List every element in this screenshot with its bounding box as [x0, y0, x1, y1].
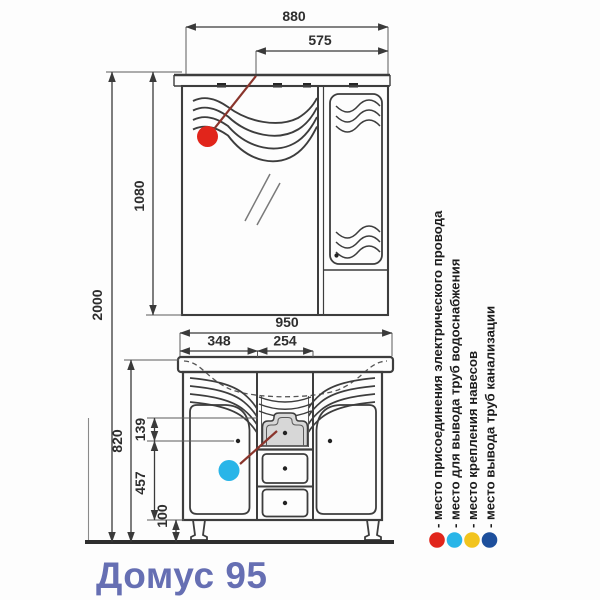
diagram-page: 880 575 2000 1080 820 139 457 [0, 0, 600, 600]
legend-dot-water-supply [447, 532, 463, 548]
dim-light-position-label: 575 [308, 32, 332, 48]
dim-door-zone-height: 457 [132, 441, 155, 520]
dim-vanity-width: 950 [180, 314, 392, 333]
water-leader-line [240, 431, 277, 464]
legend-dot-sewage [482, 532, 498, 548]
legend-label-water-supply: - место для вывода труб водоснабжения [448, 259, 463, 528]
dim-leg-height-label: 100 [154, 504, 170, 528]
dim-center-section-width: 254 [258, 333, 314, 352]
vanity-door-right [317, 405, 377, 514]
vanity-door-left-handle [236, 439, 240, 443]
dim-vanity-height-label: 820 [109, 429, 125, 453]
dim-vanity-width-label: 950 [275, 314, 299, 330]
mirror-glint [245, 174, 280, 225]
water-marker-dot [219, 460, 240, 481]
side-door-waves-top [336, 100, 380, 132]
dim-cabinet-height: 1080 [131, 72, 153, 315]
dim-upper-zone-label: 139 [132, 418, 148, 442]
side-door-waves-bottom [336, 226, 380, 258]
legend-dot-electric [429, 532, 445, 548]
dim-total-height-label: 2000 [89, 289, 105, 320]
vanity-door-left [190, 405, 250, 514]
dim-left-section-label: 348 [207, 333, 231, 349]
dim-door-zone-label: 457 [132, 471, 148, 495]
leg-left [191, 520, 207, 540]
legend: - место присоединения электрического про… [429, 210, 497, 548]
dim-light-position: 575 [256, 32, 388, 51]
legend-label-mounting: - место крепления навесов [465, 351, 480, 528]
dim-cabinet-height-label: 1080 [131, 180, 147, 211]
dim-leg-height: 100 [154, 504, 176, 542]
drawer-top-handle [283, 466, 287, 470]
countertop [178, 357, 393, 372]
side-door-handle [334, 253, 338, 257]
legend-label-electric: - место присоединения электрического про… [430, 210, 445, 528]
dim-left-section-width: 348 [180, 333, 258, 352]
marker-water-supply [219, 431, 278, 481]
water-zone-dot [283, 431, 287, 435]
mirror-cabinet-body [182, 86, 388, 315]
drawer-bottom-handle [283, 501, 287, 505]
dim-cabinet-width-label: 880 [282, 8, 306, 24]
product-title: Домус 95 [96, 555, 267, 596]
technical-drawing: 880 575 2000 1080 820 139 457 [0, 0, 600, 600]
vanity-door-right-handle [328, 439, 332, 443]
dim-cabinet-width: 880 [186, 8, 388, 27]
electric-marker-dot [197, 126, 218, 147]
legend-dot-mounting [464, 532, 480, 548]
dim-total-height: 2000 [89, 72, 112, 542]
side-cabinet-door [330, 94, 382, 264]
legend-label-sewage: - место вывода труб канализации [483, 306, 498, 528]
dimension-annotations: 880 575 2000 1080 820 139 457 [89, 8, 392, 542]
basin-outline-dashed [184, 361, 387, 397]
dim-upper-zone-height: 139 [132, 418, 155, 442]
leg-right [365, 520, 381, 540]
dim-center-section-label: 254 [273, 333, 297, 349]
mirror-cabinet-drawing [174, 75, 390, 315]
